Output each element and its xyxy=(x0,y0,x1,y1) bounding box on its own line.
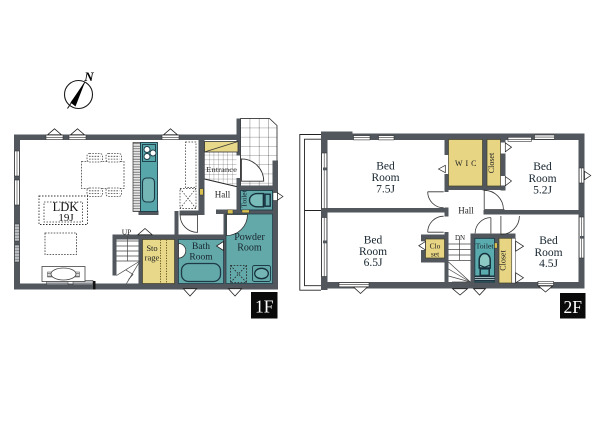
svg-text:Sto: Sto xyxy=(146,243,157,253)
svg-text:6.5J: 6.5J xyxy=(364,257,383,269)
svg-text:5.2J: 5.2J xyxy=(533,185,552,197)
svg-text:W I C: W I C xyxy=(455,159,477,168)
svg-text:UP: UP xyxy=(122,228,132,237)
svg-text:set: set xyxy=(431,250,440,259)
svg-text:Powder: Powder xyxy=(234,232,265,243)
svg-text:Room: Room xyxy=(189,253,213,263)
svg-text:Entrance: Entrance xyxy=(206,165,238,174)
svg-text:Bed: Bed xyxy=(376,161,395,173)
svg-text:Bed: Bed xyxy=(364,235,383,247)
svg-text:Toilet: Toilet xyxy=(240,189,249,207)
svg-text:Room: Room xyxy=(528,173,556,185)
svg-text:Closet: Closet xyxy=(487,152,496,173)
svg-text:1F: 1F xyxy=(255,297,274,317)
svg-text:Room: Room xyxy=(237,243,262,254)
svg-text:DN: DN xyxy=(455,234,465,242)
svg-text:Closet: Closet xyxy=(499,250,508,271)
svg-text:Room: Room xyxy=(371,172,399,184)
svg-text:N: N xyxy=(83,69,94,84)
svg-text:rage: rage xyxy=(145,253,160,263)
svg-text:Bed: Bed xyxy=(539,235,558,247)
svg-text:Bath: Bath xyxy=(192,242,210,252)
svg-text:2F: 2F xyxy=(563,297,582,317)
svg-text:19J: 19J xyxy=(58,212,74,224)
svg-text:Hall: Hall xyxy=(215,190,231,200)
svg-text:Toilet: Toilet xyxy=(476,242,495,251)
svg-text:Bed: Bed xyxy=(533,161,552,173)
svg-text:7.5J: 7.5J xyxy=(376,184,395,196)
svg-text:Hall: Hall xyxy=(458,206,474,216)
svg-text:4.5J: 4.5J xyxy=(539,258,558,270)
